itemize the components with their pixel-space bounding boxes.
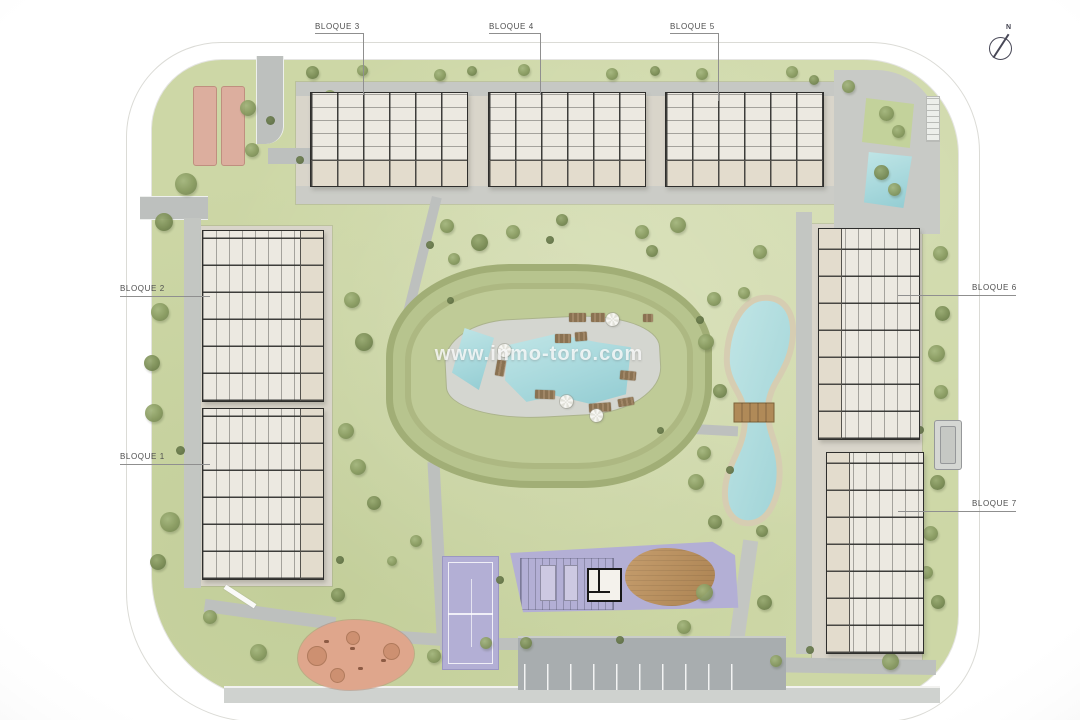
tree-icon [892,125,905,138]
tree-icon [707,292,721,306]
tree-icon [151,303,169,321]
tree-icon [175,173,197,195]
watermark: www.inmo-toro.com [398,343,680,366]
label-bloque-6: BLOQUE 6 [972,283,1017,292]
leader-line [898,295,1016,296]
building-bloque-1 [202,408,324,580]
bush-icon [296,156,304,164]
tree-icon [677,620,691,634]
sun-lounger-icon [555,334,571,343]
tree-icon [756,525,768,537]
tree-icon [635,225,649,239]
tree-icon [387,556,397,566]
tree-icon [427,649,441,663]
tree-icon [842,80,855,93]
label-bloque-3: BLOQUE 3 [315,22,360,31]
west-sidewalk [184,218,201,588]
label-bloque-7: BLOQUE 7 [972,499,1017,508]
building-bloque-3 [310,92,468,187]
tree-icon [698,334,714,350]
leader-line [718,33,719,101]
bush-icon [657,427,664,434]
parking-lot [518,636,786,690]
north-entry-road [256,56,284,144]
tree-icon [155,213,173,231]
tree-icon [355,333,373,351]
bush-icon [696,316,704,324]
sun-lounger-icon [575,331,588,341]
tree-icon [245,143,259,157]
tree-icon [923,526,938,541]
umbrella-icon [590,409,603,422]
tree-icon [696,584,713,601]
tree-icon [874,165,889,180]
leader-line [120,464,210,465]
tree-icon [713,384,727,398]
tree-icon [786,66,798,78]
tree-icon [930,475,945,490]
top-platform-walkway [296,186,874,204]
lake [718,292,806,534]
label-bloque-4: BLOQUE 4 [489,22,534,31]
tree-icon [708,515,722,529]
bush-icon [496,576,504,584]
club-building-plan [587,568,622,602]
tree-icon [646,245,658,257]
tree-icon [934,385,948,399]
tree-icon [203,610,217,624]
leader-line [540,33,541,95]
lane-box [540,565,556,601]
building-bloque-4 [488,92,646,187]
building-bloque-6 [818,228,920,440]
play-equipment-icon [358,667,363,670]
label-bloque-5: BLOQUE 5 [670,22,715,31]
tennis-center-line [471,579,473,646]
tree-icon [809,75,819,85]
play-equipment-icon [324,640,329,643]
bush-icon [616,636,624,644]
site-plan: BLOQUE 3 BLOQUE 4 BLOQUE 5 BLOQUE 2 BLOQ… [0,0,1080,720]
tree-icon [145,404,163,422]
terraces [489,160,645,186]
tree-icon [688,474,704,490]
tree-icon [738,287,750,299]
sun-lounger-icon [535,389,555,399]
tree-icon [471,234,488,251]
tree-icon [250,644,267,661]
tree-icon [696,68,708,80]
bush-icon [546,236,554,244]
tree-icon [928,345,945,362]
path-segment [268,148,312,164]
bush-icon [726,466,734,474]
tree-icon [434,69,446,81]
tree-icon [344,292,360,308]
play-area-icon [307,646,327,666]
tree-icon [150,554,166,570]
play-equipment-icon [381,659,386,662]
tree-icon [518,64,530,76]
bush-icon [176,446,185,455]
tree-icon [350,459,366,475]
bush-icon [447,297,454,304]
wooden-bridge [734,403,774,422]
tree-icon [240,100,256,116]
tree-icon [606,68,618,80]
tree-icon [448,253,460,265]
bush-icon [426,241,434,249]
tree-icon [440,219,454,233]
play-area-icon [330,668,345,683]
tree-icon [367,496,381,510]
leader-line [489,33,541,34]
building-bloque-5 [665,92,824,187]
tree-icon [888,183,901,196]
northeast-plaza [834,70,940,234]
tree-icon [931,595,945,609]
tree-icon [670,217,686,233]
building-bloque-2 [202,230,324,402]
play-equipment-icon [350,647,355,650]
leader-line [363,33,364,95]
tree-icon [757,595,772,610]
bush-icon [806,646,814,654]
leader-line [315,33,364,34]
label-bloque-1: BLOQUE 1 [120,452,165,461]
tree-icon [770,655,782,667]
tree-icon [144,355,160,371]
leader-line [120,296,210,297]
lane-box [564,565,578,601]
tree-icon [933,246,948,261]
tree-icon [697,446,711,460]
tree-icon [467,66,477,76]
leader-line [670,33,719,34]
terraces [819,229,842,439]
tree-icon [357,65,368,76]
umbrella-icon [560,395,573,408]
tree-icon [506,225,520,239]
bush-icon [336,556,344,564]
compass-north-label: N [1006,24,1011,31]
terraces [300,409,323,579]
tree-icon [331,588,345,602]
utility-pad [934,420,962,470]
tree-icon [520,637,532,649]
tree-icon [480,637,492,649]
court-strip-1 [193,86,217,166]
tree-icon [160,512,180,532]
tree-icon [879,106,894,121]
terraces [827,453,850,653]
west-entry-road [140,196,208,220]
tree-icon [935,306,950,321]
court-strip-2 [221,86,245,166]
sun-lounger-icon [620,370,637,380]
tree-icon [338,423,354,439]
terraces [300,231,323,401]
tree-icon [753,245,767,259]
umbrella-icon [606,313,619,326]
play-area-icon [346,631,360,645]
leader-line [898,511,1016,512]
building-bloque-7 [826,452,924,654]
tree-icon [306,66,319,79]
tree-icon [650,66,660,76]
sun-lounger-icon [643,314,653,322]
stairs [926,96,940,142]
sun-lounger-icon [569,313,586,322]
terraces [666,160,823,186]
play-area-icon [383,643,400,660]
tennis-court [442,556,499,670]
tree-icon [882,653,899,670]
label-bloque-2: BLOQUE 2 [120,284,165,293]
tree-icon [410,535,422,547]
sun-lounger-icon [591,313,605,322]
tree-icon [556,214,568,226]
bush-icon [266,116,275,125]
terraces [311,160,467,186]
